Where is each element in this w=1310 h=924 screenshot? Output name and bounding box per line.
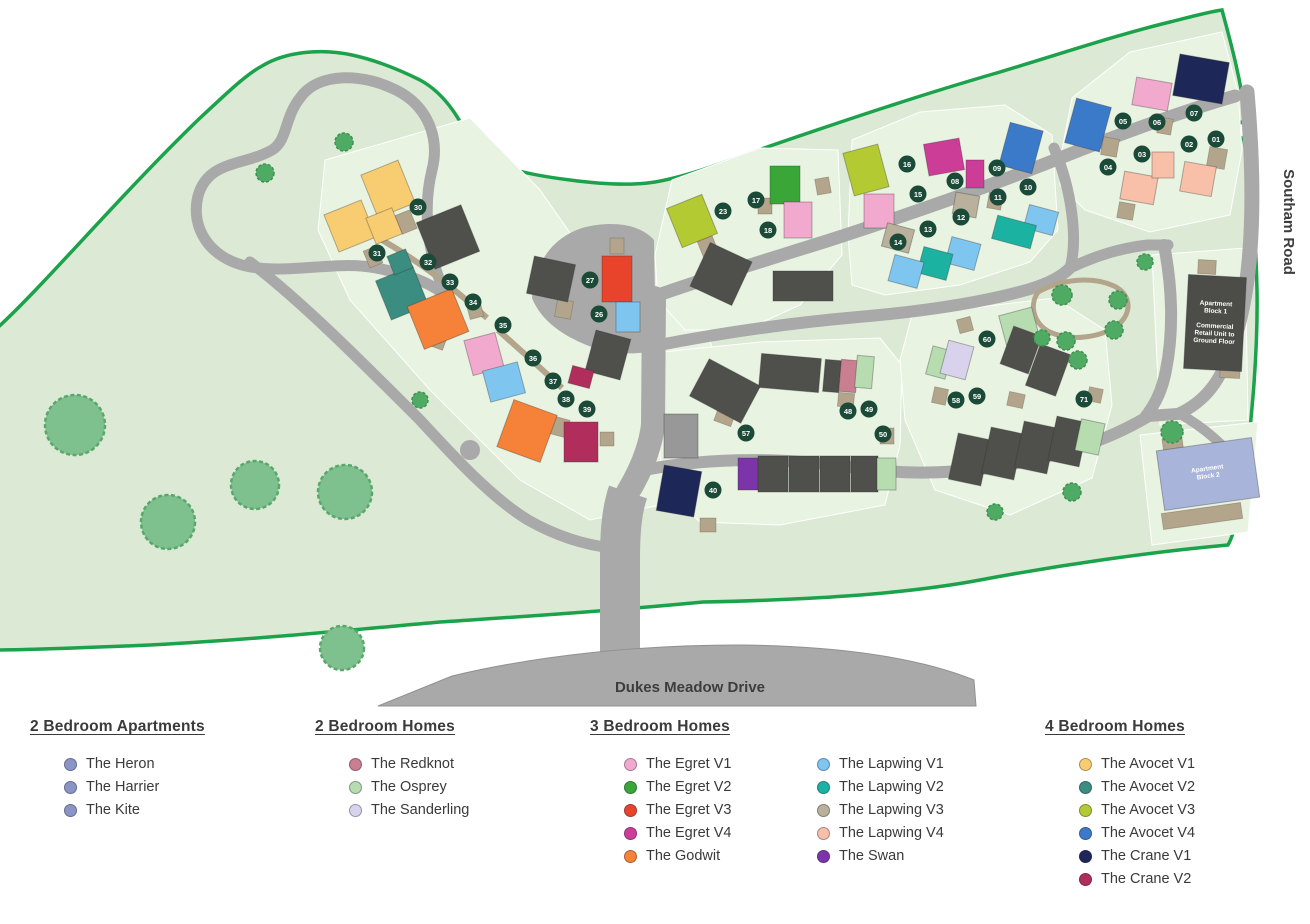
plot-number: 04 [1104, 163, 1113, 172]
legend-item-label: The Avocet V3 [1101, 802, 1195, 818]
legend-item-label: The Lapwing V3 [839, 802, 944, 818]
legend-color-dot-icon [624, 758, 637, 771]
plot-number: 27 [586, 276, 594, 285]
house-unreleased[interactable] [759, 353, 822, 392]
plot-marker-07[interactable]: 07 [1186, 105, 1203, 122]
tree-icon [45, 395, 105, 455]
legend-item: The Egret V1 [624, 756, 791, 772]
plot-marker-06[interactable]: 06 [1149, 114, 1166, 131]
plot-number: 34 [469, 298, 478, 307]
house-crane_v1[interactable] [1173, 54, 1230, 104]
legend-item-label: The Heron [86, 756, 155, 772]
plot-number: 38 [562, 395, 570, 404]
plot-marker-01[interactable]: 01 [1208, 131, 1225, 148]
house-osprey[interactable] [877, 458, 896, 490]
house-unreleased[interactable] [820, 456, 850, 492]
legend-column-4-bedroom-homes: 4 Bedroom Homes The Avocet V1The Avocet … [1045, 718, 1195, 894]
plot-number: 05 [1119, 117, 1127, 126]
plot-marker-13[interactable]: 13 [920, 221, 937, 238]
tree-icon [1069, 351, 1087, 369]
plot-marker-59[interactable]: 59 [969, 388, 986, 405]
plot-marker-33[interactable]: 33 [442, 274, 459, 291]
legend-item: The Lapwing V1 [817, 756, 984, 772]
tree-icon [1052, 285, 1072, 305]
plot-marker-08[interactable]: 08 [947, 173, 964, 190]
tree-icon [1057, 332, 1075, 350]
plot-marker-31[interactable]: 31 [369, 245, 386, 262]
plot-marker-12[interactable]: 12 [953, 209, 970, 226]
apartment-block-2[interactable]: ApartmentBlock 2 [1156, 438, 1259, 511]
tree-icon [318, 465, 372, 519]
plot-marker-05[interactable]: 05 [1115, 113, 1132, 130]
legend-color-dot-icon [349, 758, 362, 771]
house-lapwing_v4[interactable] [1180, 161, 1217, 196]
garage [931, 387, 948, 406]
plot-number: 71 [1080, 395, 1088, 404]
plot-number: 10 [1024, 183, 1032, 192]
turning-head [460, 440, 480, 460]
siteplan-map: ApartmentBlock 1 CommercialRetail Unit t… [0, 0, 1310, 710]
legend-title: 4 Bedroom Homes [1045, 718, 1195, 736]
plot-number: 31 [373, 249, 381, 258]
plot-marker-37[interactable]: 37 [545, 373, 562, 390]
legend-color-dot-icon [1079, 758, 1092, 771]
plot-number: 03 [1138, 150, 1146, 159]
legend-title: 2 Bedroom Apartments [30, 718, 205, 736]
house-crane_v2[interactable] [564, 422, 598, 462]
legend-item-list: The Egret V1The Egret V2The Egret V3The … [590, 756, 984, 871]
legend-column-2-bedroom-homes: 2 Bedroom Homes The RedknotThe OspreyThe… [315, 718, 469, 825]
plot-number: 58 [952, 396, 960, 405]
plot-number: 57 [742, 429, 750, 438]
legend-color-dot-icon [817, 804, 830, 817]
legend-item-label: The Lapwing V1 [839, 756, 944, 772]
plot-marker-60[interactable]: 60 [979, 331, 996, 348]
plot-number: 08 [951, 177, 959, 186]
plot-number: 01 [1212, 135, 1220, 144]
legend-item: The Avocet V3 [1079, 802, 1195, 818]
plot-marker-09[interactable]: 09 [989, 160, 1006, 177]
plot-marker-58[interactable]: 58 [948, 392, 965, 409]
apartment-block-1[interactable]: ApartmentBlock 1 CommercialRetail Unit t… [1184, 275, 1247, 372]
plot-marker-57[interactable]: 57 [738, 425, 755, 442]
legend-color-dot-icon [817, 781, 830, 794]
dukes-meadow-drive-road [378, 645, 976, 706]
plot-number: 07 [1190, 109, 1198, 118]
plot-marker-71[interactable]: 71 [1076, 391, 1093, 408]
tree-icon [412, 392, 428, 408]
plot-number: 15 [914, 190, 922, 199]
plot-marker-50[interactable]: 50 [875, 426, 892, 443]
legend-item-label: The Lapwing V2 [839, 779, 944, 795]
legend-item-label: The Egret V2 [646, 779, 731, 795]
plot-marker-39[interactable]: 39 [579, 401, 596, 418]
legend-item: The Sanderling [349, 802, 469, 818]
legend-title: 2 Bedroom Homes [315, 718, 469, 736]
legend-color-dot-icon [64, 804, 77, 817]
house-egret_v4[interactable] [923, 138, 964, 176]
plot-marker-15[interactable]: 15 [910, 186, 927, 203]
legend-color-dot-icon [1079, 804, 1092, 817]
legend-color-dot-icon [1079, 827, 1092, 840]
plot-number: 16 [903, 160, 911, 169]
legend-item-label: The Lapwing V4 [839, 825, 944, 841]
plot-number: 02 [1185, 140, 1193, 149]
plot-number: 40 [709, 486, 717, 495]
plot-marker-26[interactable]: 26 [591, 306, 608, 323]
tree-icon [987, 504, 1003, 520]
legend-color-dot-icon [1079, 850, 1092, 863]
legend-column-2-bedroom-apartments: 2 Bedroom Apartments The HeronThe Harrie… [30, 718, 205, 825]
tree-icon [231, 461, 279, 509]
legend-item-label: The Crane V1 [1101, 848, 1191, 864]
legend-item-label: The Kite [86, 802, 140, 818]
legend-item: The Lapwing V2 [817, 779, 984, 795]
plot-marker-03[interactable]: 03 [1134, 146, 1151, 163]
legend-item-label: The Osprey [371, 779, 447, 795]
legend-item: The Egret V2 [624, 779, 791, 795]
house-lapwing_v1[interactable] [616, 302, 640, 332]
garage [700, 518, 716, 532]
plot-number: 36 [529, 354, 537, 363]
southam-road-label: Southam Road [1280, 169, 1297, 275]
tree-icon [1161, 421, 1183, 443]
legend-item-label: The Redknot [371, 756, 454, 772]
legend-item-label: The Crane V2 [1101, 871, 1191, 887]
tree-icon [141, 495, 195, 549]
plot-number: 09 [993, 164, 1001, 173]
plot-number: 12 [957, 213, 965, 222]
plot-number: 33 [446, 278, 454, 287]
plot-number: 59 [973, 392, 981, 401]
plot-marker-17[interactable]: 17 [748, 192, 765, 209]
tree-icon [1105, 321, 1123, 339]
legend-item-label: The Avocet V2 [1101, 779, 1195, 795]
legend-item: The Egret V3 [624, 802, 791, 818]
plot-marker-18[interactable]: 18 [760, 222, 777, 239]
house-egret_v4[interactable] [966, 160, 984, 188]
legend-item: The Avocet V4 [1079, 825, 1195, 841]
legend-item: The Harrier [64, 779, 205, 795]
garage [555, 299, 574, 320]
garage [1101, 137, 1120, 158]
garage [1007, 391, 1026, 408]
garage [956, 316, 973, 333]
plot-marker-14[interactable]: 14 [890, 234, 907, 251]
plot-marker-36[interactable]: 36 [525, 350, 542, 367]
legend-color-dot-icon [624, 827, 637, 840]
garage [610, 238, 624, 254]
garage [600, 432, 614, 446]
plot-number: 11 [994, 193, 1002, 202]
legend-item: The Redknot [349, 756, 469, 772]
house-lapwing_v4[interactable] [1152, 152, 1174, 178]
plot-marker-32[interactable]: 32 [420, 254, 437, 271]
tree-icon [1034, 330, 1050, 346]
plot-marker-11[interactable]: 11 [990, 189, 1007, 206]
plot-number: 35 [499, 321, 507, 330]
legend-item: The Godwit [624, 848, 791, 864]
plot-number: 14 [894, 238, 903, 247]
legend-item-list: The Avocet V1The Avocet V2The Avocet V3T… [1045, 756, 1195, 887]
plot-marker-48[interactable]: 48 [840, 403, 857, 420]
garage [1117, 202, 1136, 221]
legend-color-dot-icon [624, 850, 637, 863]
legend-item: The Avocet V1 [1079, 756, 1195, 772]
plot-number: 17 [752, 196, 760, 205]
plot-marker-16[interactable]: 16 [899, 156, 916, 173]
house-gray_block[interactable] [664, 414, 698, 458]
garage [815, 177, 832, 195]
plot-number: 39 [583, 405, 591, 414]
house-unreleased[interactable] [527, 256, 576, 302]
tree-icon [335, 133, 353, 151]
legend-item: The Avocet V2 [1079, 779, 1195, 795]
plot-marker-38[interactable]: 38 [558, 391, 575, 408]
plot-number: 23 [719, 207, 727, 216]
garage [1198, 260, 1217, 275]
dukes-meadow-drive-label: Dukes Meadow Drive [615, 679, 765, 696]
tree-icon [1109, 291, 1127, 309]
plot-marker-40[interactable]: 40 [705, 482, 722, 499]
legend-color-dot-icon [349, 781, 362, 794]
plot-number: 50 [879, 430, 887, 439]
legend-color-dot-icon [817, 758, 830, 771]
plot-number: 60 [983, 335, 991, 344]
legend-color-dot-icon [624, 781, 637, 794]
legend-item-label: The Avocet V4 [1101, 825, 1195, 841]
plot-marker-23[interactable]: 23 [715, 203, 732, 220]
house-swan[interactable] [738, 458, 758, 490]
legend-title: 3 Bedroom Homes [590, 718, 984, 736]
plot-number: 30 [414, 203, 422, 212]
plot-marker-49[interactable]: 49 [861, 401, 878, 418]
plot-number: 06 [1153, 118, 1161, 127]
legend-item: The Kite [64, 802, 205, 818]
legend-item-label: The Egret V4 [646, 825, 731, 841]
house-osprey[interactable] [855, 355, 875, 388]
legend-item-label: The Sanderling [371, 802, 469, 818]
plot-number: 26 [595, 310, 603, 319]
legend-item-label: The Avocet V1 [1101, 756, 1195, 772]
legend-item: The Osprey [349, 779, 469, 795]
plot-number: 48 [844, 407, 852, 416]
plot-marker-27[interactable]: 27 [582, 272, 599, 289]
legend-item-label: The Harrier [86, 779, 159, 795]
legend-color-dot-icon [64, 781, 77, 794]
plot-number: 13 [924, 225, 932, 234]
plot-number: 32 [424, 258, 432, 267]
legend-color-dot-icon [1079, 781, 1092, 794]
plot-marker-10[interactable]: 10 [1020, 179, 1037, 196]
plot-number: 18 [764, 226, 772, 235]
legend-color-dot-icon [1079, 873, 1092, 886]
tree-icon [256, 164, 274, 182]
legend-item-list: The RedknotThe OspreyThe Sanderling [315, 756, 469, 818]
legend-color-dot-icon [64, 758, 77, 771]
house-unreleased[interactable] [789, 456, 819, 492]
plot-marker-30[interactable]: 30 [410, 199, 427, 216]
tree-icon [1137, 254, 1153, 270]
house-unreleased[interactable] [758, 456, 788, 492]
house-egret_v1[interactable] [784, 202, 812, 238]
legend-item-list: The HeronThe HarrierThe Kite [30, 756, 205, 818]
plot-marker-04[interactable]: 04 [1100, 159, 1117, 176]
legend-item-label: The Godwit [646, 848, 720, 864]
plot-number: 49 [865, 405, 873, 414]
house-unreleased[interactable] [773, 271, 833, 301]
house-egret_v1[interactable] [1132, 77, 1172, 111]
house-egret_v3[interactable] [602, 256, 632, 302]
house-egret_v2[interactable] [770, 166, 800, 204]
legend-item-label: The Swan [839, 848, 904, 864]
house-unreleased[interactable] [851, 456, 878, 492]
legend-item: The Crane V2 [1079, 871, 1195, 887]
legend-item: The Crane V1 [1079, 848, 1195, 864]
plot-marker-02[interactable]: 02 [1181, 136, 1198, 153]
legend-item: The Egret V4 [624, 825, 791, 841]
legend-color-dot-icon [349, 804, 362, 817]
legend-item: The Lapwing V3 [817, 802, 984, 818]
tree-icon [1063, 483, 1081, 501]
legend-item: The Lapwing V4 [817, 825, 984, 841]
plot-number: 37 [549, 377, 557, 386]
legend-item: The Swan [817, 848, 984, 864]
legend-color-dot-icon [817, 850, 830, 863]
plot-marker-34[interactable]: 34 [465, 294, 482, 311]
plot-marker-35[interactable]: 35 [495, 317, 512, 334]
legend-color-dot-icon [624, 804, 637, 817]
legend-column-3-bedroom-homes: 3 Bedroom Homes The Egret V1The Egret V2… [590, 718, 984, 871]
legend-item: The Heron [64, 756, 205, 772]
legend-color-dot-icon [817, 827, 830, 840]
tree-icon [320, 626, 364, 670]
legend: 2 Bedroom Apartments The HeronThe Harrie… [0, 718, 1310, 924]
house-crane_v1[interactable] [656, 465, 701, 517]
legend-item-label: The Egret V1 [646, 756, 731, 772]
siteplan-svg: ApartmentBlock 1 CommercialRetail Unit t… [0, 0, 1310, 710]
legend-item-label: The Egret V3 [646, 802, 731, 818]
